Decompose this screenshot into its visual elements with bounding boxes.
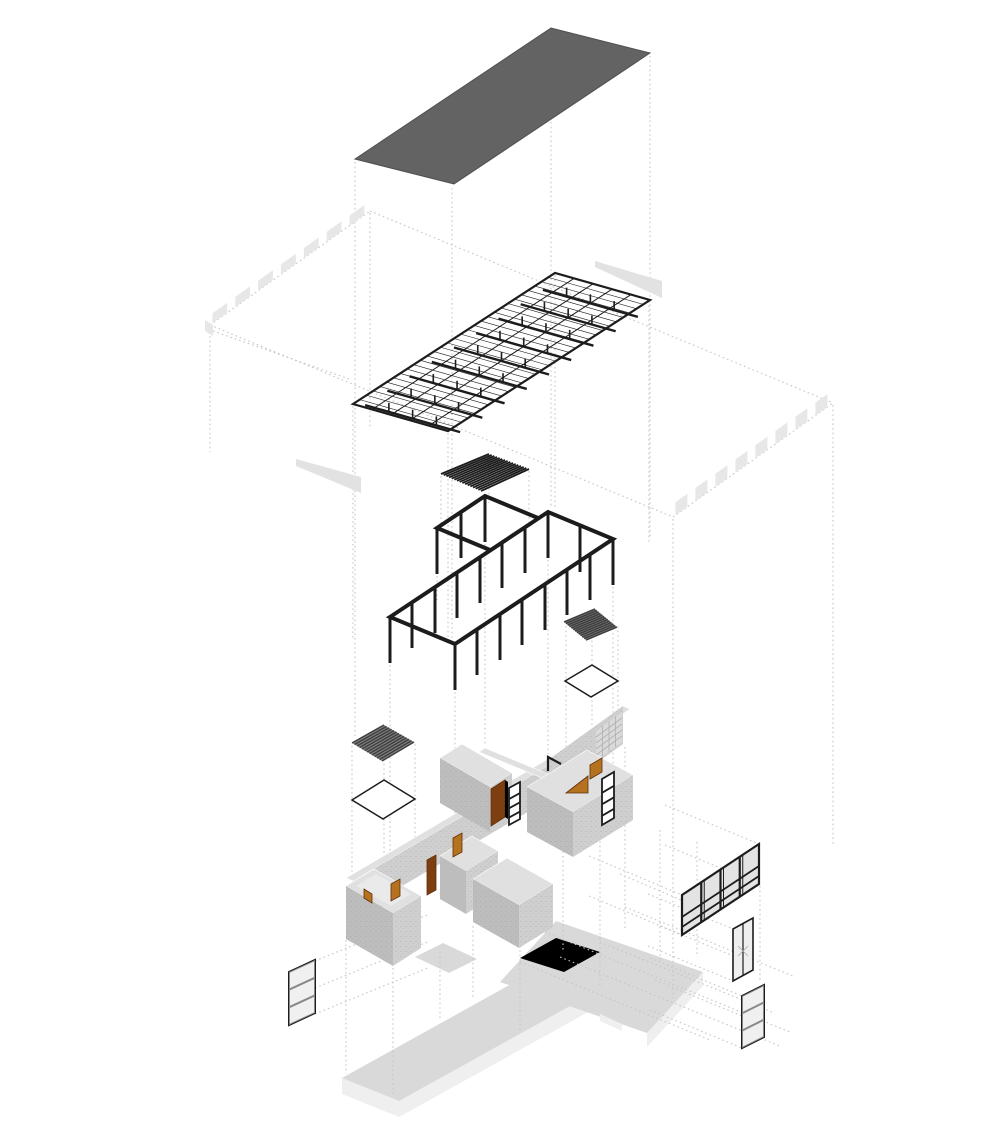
louver-east bbox=[564, 609, 617, 640]
fascia-nw bbox=[212, 205, 364, 323]
fascia-segment-nw bbox=[327, 221, 342, 242]
fascia-segment-nw bbox=[304, 238, 319, 259]
structural-frame bbox=[390, 496, 613, 690]
fascia-se bbox=[675, 394, 827, 515]
slab-stub-nw bbox=[415, 943, 477, 973]
roof-truss bbox=[353, 273, 650, 432]
projection-line bbox=[589, 896, 682, 935]
fascia-segment-nw bbox=[212, 303, 227, 324]
ladder-window-1 bbox=[509, 782, 520, 825]
outline-east bbox=[565, 665, 618, 697]
projection-line bbox=[213, 331, 352, 380]
gutter-wedge-north bbox=[595, 261, 662, 298]
fascia-segment-se bbox=[675, 494, 687, 516]
fascia-segment-se bbox=[775, 422, 787, 444]
projection-line bbox=[650, 1010, 742, 1048]
projection-line bbox=[589, 856, 682, 895]
fascia-segment-se bbox=[735, 451, 747, 473]
stacked-window-east-glass bbox=[742, 985, 764, 1048]
fascia-segment-se bbox=[755, 437, 767, 459]
projection-line bbox=[665, 805, 759, 844]
fascia-segment-nw bbox=[350, 205, 365, 226]
fascia-segment-se bbox=[815, 394, 827, 416]
roof-plane bbox=[355, 28, 650, 184]
fascia-segment-nw bbox=[281, 254, 296, 275]
fascia-segment-nw bbox=[258, 270, 273, 291]
projection-line bbox=[315, 967, 430, 1014]
roof-slab bbox=[355, 28, 650, 184]
glazed-door bbox=[733, 918, 753, 981]
gutter-wedge-west bbox=[296, 459, 361, 493]
exploded-axon-svg bbox=[0, 0, 1000, 1147]
fascia-segment-se bbox=[715, 465, 727, 487]
ladder-window-2 bbox=[602, 772, 614, 825]
door-brown-south bbox=[427, 855, 436, 895]
louver-upper bbox=[441, 454, 529, 491]
fascia-segment-se bbox=[695, 479, 707, 501]
diagram-canvas bbox=[0, 0, 1000, 1147]
fascia-segment-se bbox=[795, 408, 807, 430]
fascia-segment-nw bbox=[235, 286, 250, 307]
door-brown-center-edge bbox=[505, 780, 508, 819]
louver-west bbox=[352, 725, 414, 761]
stacked-window-west bbox=[289, 960, 315, 1025]
stacked-window-east bbox=[742, 985, 764, 1048]
outline-west bbox=[352, 780, 415, 819]
fascia-corner-block bbox=[205, 320, 213, 336]
